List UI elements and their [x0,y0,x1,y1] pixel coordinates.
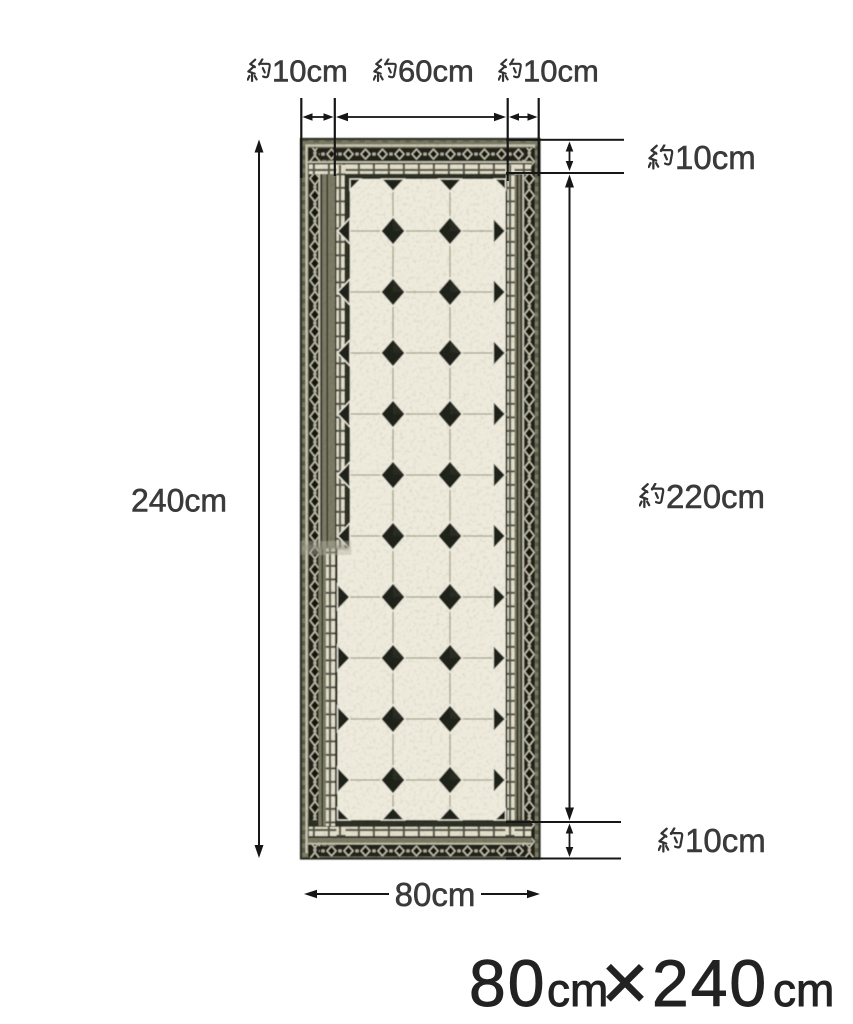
svg-text:80: 80 [469,946,546,1020]
svg-text:cm: cm [547,964,608,1016]
svg-text:10cm: 10cm [675,139,756,176]
svg-text:10cm: 10cm [272,54,348,89]
svg-text:cm: cm [773,964,834,1016]
svg-text:80cm: 80cm [395,876,476,913]
svg-text:×: × [601,937,649,1024]
svg-text:10cm: 10cm [523,54,599,89]
svg-text:240: 240 [652,946,768,1020]
svg-text:220cm: 220cm [666,478,765,515]
svg-text:10cm: 10cm [685,822,766,859]
svg-text:240cm: 240cm [131,483,227,519]
svg-text:60cm: 60cm [398,54,474,89]
